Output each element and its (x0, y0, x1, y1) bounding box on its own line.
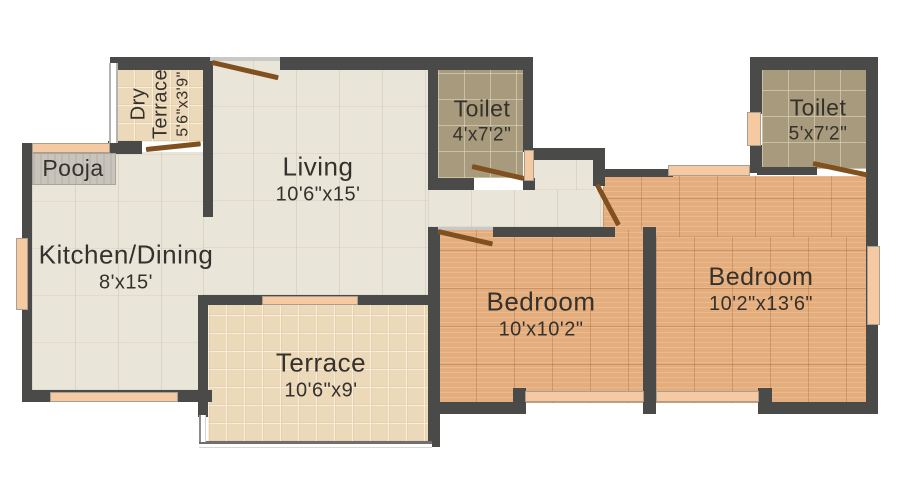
bedroom2-bottom-window (656, 391, 759, 402)
bedroom2-label: Bedroom 10'2"x13'6" (709, 263, 814, 315)
bedroom1-label: Bedroom 10'x10'2" (487, 287, 596, 341)
room-name: Living (276, 152, 361, 181)
room-name: Bedroom (487, 287, 596, 316)
toilet2-label: Toilet 5'x7'2" (789, 95, 848, 144)
toilet2-window (747, 112, 761, 146)
wall-bedroom-divider (643, 227, 656, 414)
room-dims: 10'6"x15' (276, 183, 361, 205)
bedroom1-threshold (438, 227, 493, 230)
hallway-floor-lower (428, 190, 603, 227)
wall-bedroom2-top (605, 169, 673, 177)
entry-threshold (210, 57, 280, 61)
wall-toilet2-bottom (757, 167, 817, 175)
terrace-sliding-door (262, 296, 358, 305)
wall-bedroom2-door-stub (593, 148, 605, 186)
room-dims: 5'6"x3'9" (174, 62, 192, 146)
wall-toilet1-right (523, 57, 533, 152)
wall-bedroom2-step (758, 388, 772, 404)
wall-toilet1-bottom (428, 178, 474, 190)
kitchen-left-window (16, 238, 28, 310)
wall-toilet1-left (428, 57, 438, 190)
toilet1-window (524, 150, 534, 181)
wall-bedroom1-left (428, 227, 440, 447)
room-dims: 5'x7'2" (789, 123, 848, 144)
room-dims: 10'6"x9' (276, 379, 366, 401)
wall-kitchen-living-divider (203, 57, 213, 217)
room-dims: 10'2"x13'6" (709, 293, 814, 315)
dry-terrace-label: Dry Terrace 5'6"x3'9" (128, 62, 193, 146)
wall-top-living (280, 57, 433, 70)
room-name: Kitchen/Dining (39, 240, 214, 269)
wall-bedroom1-top (493, 227, 615, 237)
bedroom2-top-window (668, 165, 750, 176)
wall-toilet1-top (428, 57, 533, 70)
floor-plan: Pooja Dry Terrace 5'6"x3'9" Living 10'6"… (0, 0, 900, 500)
kitchen-bottom-window (50, 392, 178, 402)
wall-toilet2-top (750, 57, 878, 70)
room-name: Pooja (42, 156, 103, 182)
terrace-railing-bottom (199, 441, 432, 448)
kitchen-label: Kitchen/Dining 8'x15' (39, 240, 214, 294)
hallway-floor-upper (533, 160, 595, 190)
pooja-window (32, 143, 110, 153)
toilet1-label: Toilet 4'x7'2" (453, 96, 512, 145)
wall-bedroom1-bottom (428, 402, 526, 414)
room-name: Dry Terrace (128, 62, 173, 146)
wall-toilet2-right (866, 57, 878, 179)
dry-terrace-glass-panel (109, 63, 118, 143)
room-name: Terrace (276, 348, 366, 377)
room-dims: 8'x15' (39, 271, 214, 293)
pooja-label: Pooja (42, 156, 103, 182)
room-dims: 4'x7'2" (453, 124, 512, 145)
room-dims: 10'x10'2" (487, 318, 596, 340)
terrace-railing-left (199, 415, 206, 442)
wall-bedroom2-bottom (758, 402, 878, 414)
terrace-label: Terrace 10'6"x9' (276, 348, 366, 402)
bedroom1-bottom-window (525, 391, 644, 402)
bedroom2-right-window (867, 246, 880, 325)
living-label: Living 10'6"x15' (276, 152, 361, 206)
room-name: Toilet (789, 95, 848, 121)
room-name: Bedroom (709, 263, 814, 291)
room-name: Toilet (453, 96, 512, 122)
